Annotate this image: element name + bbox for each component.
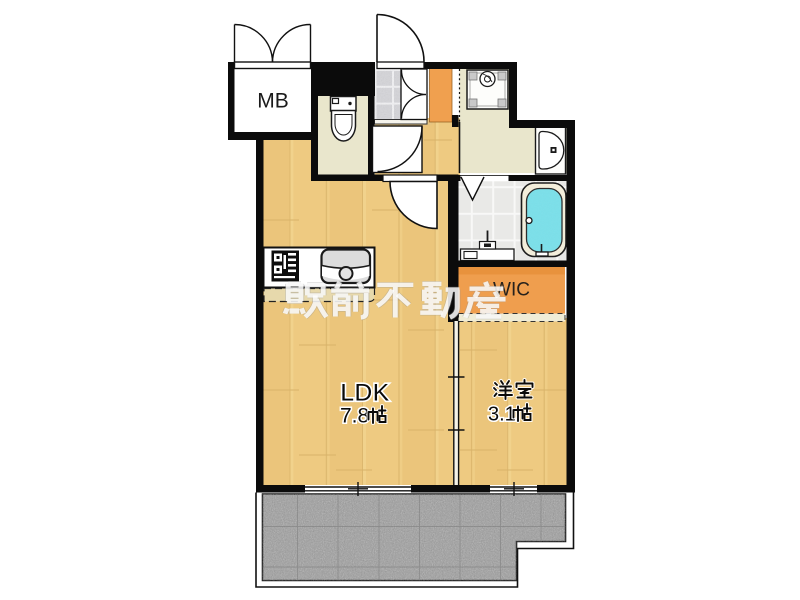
svg-text:7.8: 7.8 bbox=[340, 405, 369, 428]
svg-text:MB: MB bbox=[257, 90, 289, 113]
svg-text:LDK: LDK bbox=[340, 380, 389, 407]
